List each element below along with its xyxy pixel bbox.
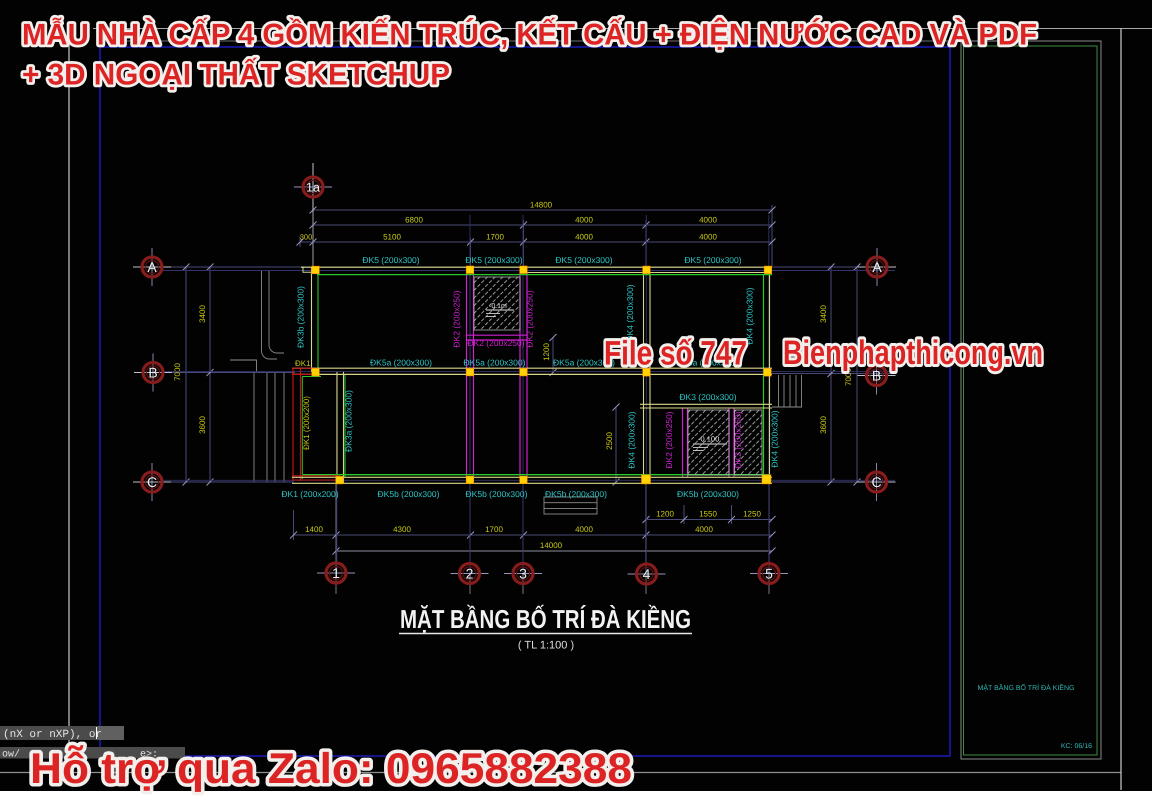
svg-text:14800: 14800	[530, 201, 553, 210]
svg-text:ĐK5 (200x300): ĐK5 (200x300)	[465, 255, 522, 265]
svg-text:-0.100: -0.100	[698, 435, 719, 444]
svg-text:14000: 14000	[540, 541, 563, 550]
svg-text:1a: 1a	[306, 181, 320, 195]
svg-text:ĐK1 (200x200): ĐK1 (200x200)	[281, 489, 338, 499]
svg-text:1200: 1200	[542, 343, 551, 361]
svg-text:ĐK5b (200x300): ĐK5b (200x300)	[466, 489, 528, 499]
svg-text:4000: 4000	[699, 216, 717, 225]
svg-text:ĐK2 (200x250): ĐK2 (200x250)	[525, 290, 535, 347]
svg-text:B: B	[148, 365, 157, 381]
svg-text:ĐK2 (200x250): ĐK2 (200x250)	[664, 411, 674, 468]
svg-text:File số 747: File số 747	[604, 335, 747, 373]
svg-text:MẶT BẦNG BỐ TRÍ ĐÀ KIỀNG: MẶT BẦNG BỐ TRÍ ĐÀ KIỀNG	[978, 683, 1075, 692]
svg-text:MẶT BẦNG BỐ TRÍ ĐÀ KIỀNG: MẶT BẦNG BỐ TRÍ ĐÀ KIỀNG	[400, 604, 691, 634]
svg-text:3600: 3600	[819, 416, 828, 434]
svg-text:Bienphapthicong.vn: Bienphapthicong.vn	[783, 334, 1043, 372]
svg-text:5100: 5100	[383, 233, 401, 242]
svg-text:1200: 1200	[656, 510, 674, 519]
svg-text:ĐK5a (200x300): ĐK5a (200x300)	[464, 358, 526, 368]
svg-text:4000: 4000	[699, 233, 717, 242]
svg-text:ĐK5 (200x300): ĐK5 (200x300)	[555, 255, 612, 265]
svg-text:2: 2	[466, 566, 474, 582]
svg-text:ĐK4 (200x300): ĐK4 (200x300)	[770, 410, 780, 467]
svg-text:C: C	[147, 474, 157, 490]
svg-text:+ 3D NGOẠI THẤT SKETCHUP: + 3D NGOẠI THẤT SKETCHUP	[22, 58, 450, 92]
svg-text:ĐK5 (200x300): ĐK5 (200x300)	[362, 255, 419, 265]
svg-text:3400: 3400	[819, 305, 828, 323]
svg-text:1550: 1550	[699, 510, 717, 519]
svg-text:4: 4	[643, 566, 651, 582]
svg-text:1700: 1700	[486, 233, 504, 242]
svg-text:4000: 4000	[695, 525, 713, 534]
svg-text:4300: 4300	[393, 525, 411, 534]
svg-text:ĐK3b (200x300): ĐK3b (200x300)	[296, 286, 306, 348]
svg-text:( TL 1:100 ): ( TL 1:100 )	[518, 640, 574, 652]
svg-text:4000: 4000	[575, 233, 593, 242]
svg-text:KC: 06/16: KC: 06/16	[1061, 742, 1092, 750]
svg-text:MẪU NHÀ CẤP 4 GỒM KIẾN TRÚC, K: MẪU NHÀ CẤP 4 GỒM KIẾN TRÚC, KẾT CẤU + Đ…	[22, 18, 1037, 52]
svg-text:ĐK5b (200x300): ĐK5b (200x300)	[677, 489, 739, 499]
svg-text:A: A	[147, 259, 157, 275]
svg-text:6800: 6800	[405, 216, 423, 225]
svg-text:3: 3	[519, 566, 527, 582]
svg-text:ĐK3 (200x300): ĐK3 (200x300)	[679, 392, 736, 402]
svg-text:ĐK4 (200x300): ĐK4 (200x300)	[627, 411, 637, 468]
svg-text:ĐK2 (200x250): ĐK2 (200x250)	[467, 338, 524, 348]
svg-text:Hỗ trợ qua Zalo: 0965882388: Hỗ trợ qua Zalo: 0965882388	[30, 745, 632, 793]
svg-text:2500: 2500	[605, 432, 614, 450]
svg-text:ĐK5b (200x300): ĐK5b (200x300)	[378, 489, 440, 499]
svg-text:ĐK5a (200x300): ĐK5a (200x300)	[370, 358, 432, 368]
svg-text:1400: 1400	[305, 525, 323, 534]
svg-text:A: A	[872, 259, 882, 275]
svg-text:(nX or nXP), or: (nX or nXP), or	[3, 729, 102, 741]
svg-text:ĐK2 (200x250): ĐK2 (200x250)	[733, 411, 743, 468]
svg-text:1250: 1250	[743, 510, 761, 519]
svg-text:300: 300	[300, 233, 313, 242]
svg-text:4000: 4000	[575, 525, 593, 534]
svg-text:ĐK1: ĐK1	[295, 359, 311, 368]
svg-text:4000: 4000	[575, 216, 593, 225]
svg-text:ĐK4 (200x300): ĐK4 (200x300)	[625, 284, 635, 341]
svg-text:5: 5	[765, 566, 773, 582]
svg-text:1700: 1700	[485, 525, 503, 534]
svg-text:ĐK5b (200x300): ĐK5b (200x300)	[545, 489, 607, 499]
svg-text:3400: 3400	[198, 305, 207, 323]
svg-text:3600: 3600	[198, 416, 207, 434]
svg-text:ĐK2 (200x250): ĐK2 (200x250)	[452, 290, 462, 347]
svg-text:ĐK1 (200x200): ĐK1 (200x200)	[302, 396, 311, 450]
svg-text:1: 1	[332, 565, 340, 581]
svg-text:C: C	[871, 474, 881, 490]
svg-text:ĐK3a (200x300): ĐK3a (200x300)	[344, 390, 354, 452]
svg-text:ĐK5 (200x300): ĐK5 (200x300)	[684, 255, 741, 265]
svg-text:-0.1m: -0.1m	[489, 303, 507, 310]
